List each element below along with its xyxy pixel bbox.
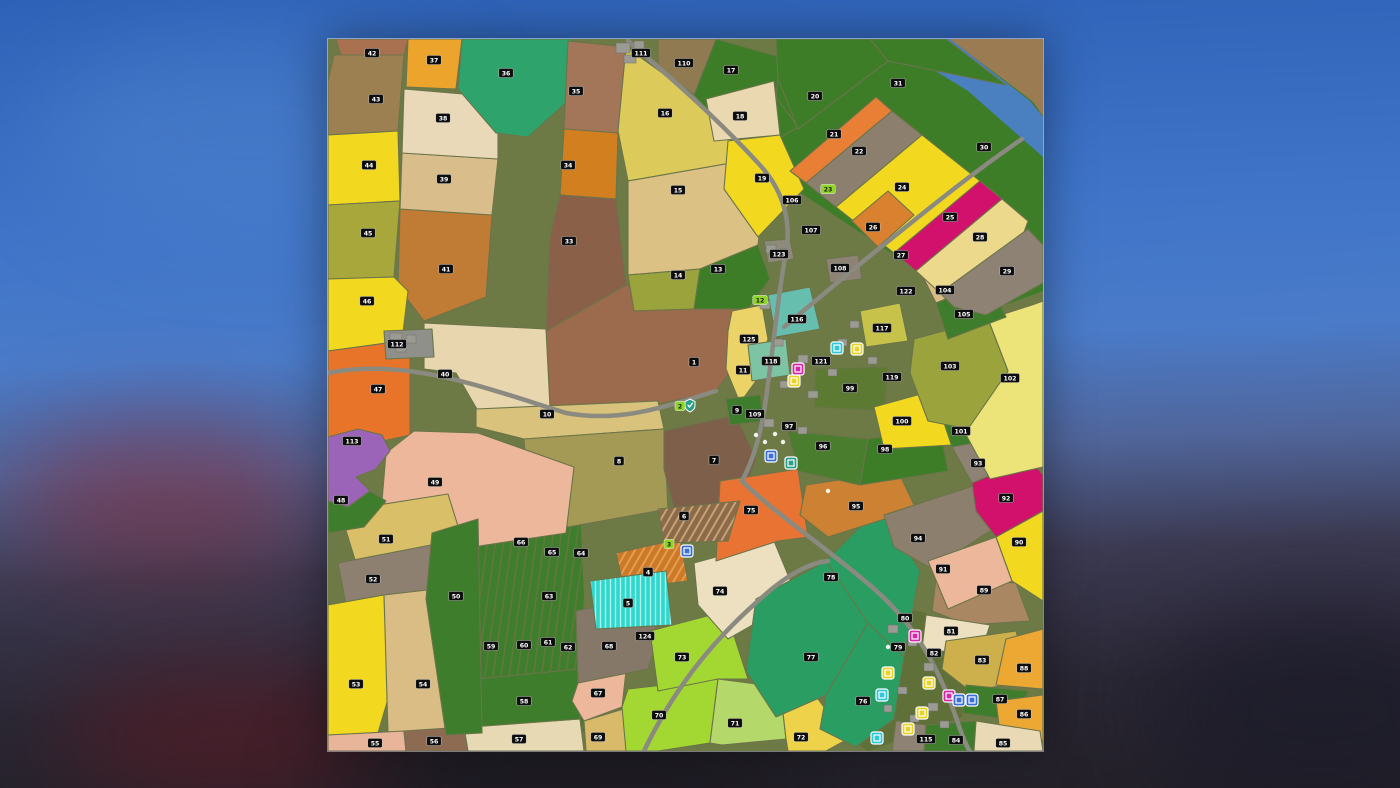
- field-label-3: 3: [664, 539, 674, 548]
- field-label-98: 98: [878, 444, 893, 453]
- svg-text:28: 28: [976, 234, 985, 241]
- svg-text:115: 115: [920, 736, 933, 743]
- svg-text:18: 18: [736, 113, 745, 120]
- field-label-11: 11: [736, 365, 751, 374]
- field-label-62: 62: [561, 642, 576, 651]
- field-label-19: 19: [755, 173, 770, 182]
- svg-text:30: 30: [980, 144, 989, 151]
- svg-text:92: 92: [1002, 495, 1011, 502]
- field-label-107: 107: [802, 225, 821, 234]
- building: [884, 705, 892, 712]
- field-label-72: 72: [794, 732, 809, 741]
- svg-text:73: 73: [678, 654, 687, 661]
- svg-text:22: 22: [855, 148, 864, 155]
- field-label-111: 111: [632, 48, 651, 57]
- field-label-106: 106: [783, 195, 802, 204]
- field-label-115: 115: [917, 734, 936, 743]
- field-label-68: 68: [602, 641, 617, 650]
- field-label-23: 23: [821, 184, 836, 193]
- svg-text:11: 11: [739, 367, 748, 374]
- vehicle-marker: [886, 645, 890, 649]
- building: [634, 41, 644, 49]
- svg-text:88: 88: [1020, 665, 1029, 672]
- field-label-103: 103: [941, 361, 960, 370]
- field-label-101: 101: [952, 426, 971, 435]
- vehicle-marker: [826, 489, 830, 493]
- svg-text:10: 10: [543, 411, 552, 418]
- svg-text:9: 9: [735, 407, 739, 414]
- field-55[interactable]: [328, 731, 406, 751]
- field-label-45: 45: [361, 228, 376, 237]
- field-label-76: 76: [856, 696, 871, 705]
- svg-text:89: 89: [980, 587, 989, 594]
- field-label-83: 83: [975, 655, 990, 664]
- svg-text:59: 59: [487, 643, 496, 650]
- field-label-17: 17: [724, 65, 739, 74]
- svg-text:49: 49: [431, 479, 440, 486]
- field-label-35: 35: [569, 86, 584, 95]
- svg-text:2: 2: [678, 403, 682, 410]
- building: [868, 357, 877, 364]
- svg-text:121: 121: [815, 358, 828, 365]
- field-label-66: 66: [514, 537, 529, 546]
- field-label-22: 22: [852, 146, 867, 155]
- svg-text:105: 105: [958, 311, 971, 318]
- svg-text:60: 60: [520, 642, 529, 649]
- svg-text:67: 67: [594, 690, 603, 697]
- svg-text:96: 96: [819, 443, 828, 450]
- field-label-15: 15: [671, 185, 686, 194]
- building: [406, 335, 416, 343]
- svg-text:91: 91: [939, 566, 948, 573]
- field-label-37: 37: [427, 55, 442, 64]
- field-70[interactable]: [622, 679, 718, 751]
- field-label-33: 33: [562, 236, 577, 245]
- field-label-39: 39: [437, 174, 452, 183]
- field-label-4: 4: [643, 567, 653, 576]
- svg-text:24: 24: [898, 184, 907, 191]
- field-label-38: 38: [436, 113, 451, 122]
- svg-text:75: 75: [747, 507, 756, 514]
- field-6[interactable]: [658, 501, 740, 543]
- svg-text:35: 35: [572, 88, 581, 95]
- field-label-70: 70: [652, 710, 667, 719]
- field-label-112: 112: [388, 339, 407, 348]
- svg-text:3: 3: [667, 541, 671, 548]
- field-label-69: 69: [591, 732, 606, 741]
- field-label-24: 24: [895, 182, 910, 191]
- svg-text:4: 4: [646, 569, 651, 576]
- field-label-108: 108: [831, 263, 850, 272]
- poi-shop-blue[interactable]: [953, 694, 965, 706]
- field-53[interactable]: [328, 595, 388, 735]
- field-label-92: 92: [999, 493, 1014, 502]
- svg-text:20: 20: [811, 93, 820, 100]
- svg-text:119: 119: [886, 374, 899, 381]
- svg-text:74: 74: [716, 588, 725, 595]
- svg-text:76: 76: [859, 698, 868, 705]
- field-label-25: 25: [943, 212, 958, 221]
- field-label-79: 79: [891, 642, 906, 651]
- poi-shop-blue[interactable]: [966, 694, 978, 706]
- svg-text:97: 97: [785, 423, 794, 430]
- field-label-7: 7: [709, 455, 719, 464]
- svg-text:116: 116: [791, 316, 804, 323]
- field-label-44: 44: [362, 160, 377, 169]
- field-label-6: 6: [679, 511, 689, 520]
- field-label-31: 31: [891, 78, 906, 87]
- field-14[interactable]: [628, 269, 700, 311]
- svg-text:107: 107: [805, 227, 818, 234]
- field-label-53: 53: [349, 679, 364, 688]
- svg-text:48: 48: [337, 497, 346, 504]
- field-label-49: 49: [428, 477, 443, 486]
- field-label-109: 109: [746, 409, 765, 418]
- svg-text:101: 101: [955, 428, 968, 435]
- building: [774, 339, 783, 346]
- field-label-86: 86: [1017, 709, 1032, 718]
- poi-sell-point-yellow[interactable]: [788, 375, 800, 387]
- svg-text:42: 42: [368, 50, 377, 57]
- field-label-47: 47: [371, 384, 386, 393]
- field-label-64: 64: [574, 548, 589, 557]
- field-label-26: 26: [866, 222, 881, 231]
- vehicle-marker: [763, 440, 767, 444]
- field-label-116: 116: [788, 314, 807, 323]
- svg-text:8: 8: [617, 458, 621, 465]
- svg-text:93: 93: [974, 460, 983, 467]
- field-label-63: 63: [542, 591, 557, 600]
- building: [928, 703, 938, 711]
- svg-text:26: 26: [869, 224, 878, 231]
- field-label-91: 91: [936, 564, 951, 573]
- poi-shop-blue[interactable]: [681, 545, 693, 557]
- building: [808, 391, 818, 398]
- field-label-65: 65: [545, 547, 560, 556]
- svg-text:71: 71: [731, 720, 740, 727]
- field-label-20: 20: [808, 91, 823, 100]
- field-label-21: 21: [827, 129, 842, 138]
- field-label-46: 46: [360, 296, 375, 305]
- field-label-12: 12: [753, 295, 768, 304]
- field-label-122: 122: [897, 286, 916, 295]
- svg-text:6: 6: [682, 513, 686, 520]
- field-label-51: 51: [379, 534, 394, 543]
- svg-text:44: 44: [365, 162, 374, 169]
- field-label-88: 88: [1017, 663, 1032, 672]
- field-label-85: 85: [996, 738, 1011, 747]
- svg-text:72: 72: [797, 734, 806, 741]
- field-label-124: 124: [636, 631, 655, 640]
- svg-text:79: 79: [894, 644, 903, 651]
- svg-text:102: 102: [1004, 375, 1017, 382]
- svg-text:123: 123: [773, 251, 786, 258]
- svg-text:19: 19: [758, 175, 767, 182]
- field-label-13: 13: [711, 264, 726, 273]
- field-label-40: 40: [438, 369, 453, 378]
- svg-text:27: 27: [897, 252, 906, 259]
- field-label-89: 89: [977, 585, 992, 594]
- field-label-113: 113: [343, 436, 362, 445]
- field-label-42: 42: [365, 48, 380, 57]
- svg-text:13: 13: [714, 266, 723, 273]
- field-label-105: 105: [955, 309, 974, 318]
- field-label-95: 95: [849, 501, 864, 510]
- field-label-50: 50: [449, 591, 464, 600]
- svg-text:47: 47: [374, 386, 383, 393]
- field-label-81: 81: [944, 626, 959, 635]
- building: [764, 419, 774, 427]
- field-label-75: 75: [744, 505, 759, 514]
- poi-vehicle-teal[interactable]: [785, 457, 797, 469]
- building: [898, 687, 907, 694]
- svg-text:55: 55: [371, 740, 380, 747]
- svg-text:90: 90: [1015, 539, 1024, 546]
- field-label-96: 96: [816, 441, 831, 450]
- field-label-87: 87: [993, 694, 1008, 703]
- field-label-67: 67: [591, 688, 606, 697]
- svg-text:31: 31: [894, 80, 903, 87]
- poi-sell-point-yellow[interactable]: [923, 677, 935, 689]
- poi-sell-point-yellow[interactable]: [916, 707, 928, 719]
- svg-text:83: 83: [978, 657, 987, 664]
- svg-text:109: 109: [749, 411, 762, 418]
- building: [850, 321, 859, 328]
- field-label-14: 14: [671, 270, 686, 279]
- svg-text:78: 78: [827, 574, 836, 581]
- building: [924, 663, 934, 671]
- svg-text:15: 15: [674, 187, 683, 194]
- field-label-123: 123: [770, 249, 789, 258]
- field-label-77: 77: [804, 652, 819, 661]
- svg-text:25: 25: [946, 214, 955, 221]
- field-label-97: 97: [782, 421, 797, 430]
- poi-sell-point-yellow[interactable]: [902, 723, 914, 735]
- field-label-99: 99: [843, 383, 858, 392]
- svg-text:37: 37: [430, 57, 439, 64]
- poi-sell-point-yellow[interactable]: [851, 343, 863, 355]
- field-map-canvas[interactable]: 1404139383736353433161514131711018192031…: [328, 39, 1043, 751]
- building: [888, 625, 898, 633]
- shield-icon[interactable]: [685, 399, 695, 412]
- field-label-58: 58: [517, 696, 532, 705]
- background-blur-dark: [1150, 600, 1400, 788]
- svg-text:43: 43: [372, 96, 381, 103]
- svg-text:51: 51: [382, 536, 391, 543]
- svg-text:98: 98: [881, 446, 890, 453]
- field-label-117: 117: [873, 323, 892, 332]
- field-39[interactable]: [400, 153, 498, 215]
- field-map[interactable]: 1404139383736353433161514131711018192031…: [327, 38, 1044, 752]
- field-label-29: 29: [1000, 266, 1015, 275]
- svg-text:70: 70: [655, 712, 664, 719]
- svg-text:5: 5: [626, 600, 630, 607]
- field-label-27: 27: [894, 250, 909, 259]
- field-label-52: 52: [366, 574, 381, 583]
- field-label-54: 54: [416, 679, 431, 688]
- poi-shop-blue[interactable]: [765, 450, 777, 462]
- poi-sell-point-yellow[interactable]: [882, 667, 894, 679]
- poi-production-cyan[interactable]: [876, 689, 888, 701]
- building: [798, 355, 808, 363]
- svg-text:104: 104: [939, 287, 953, 294]
- vehicle-marker: [773, 432, 777, 436]
- svg-text:112: 112: [391, 341, 404, 348]
- svg-text:23: 23: [824, 186, 833, 193]
- svg-text:52: 52: [369, 576, 378, 583]
- svg-text:34: 34: [564, 162, 573, 169]
- svg-text:99: 99: [846, 385, 855, 392]
- field-label-102: 102: [1001, 373, 1020, 382]
- svg-text:39: 39: [440, 176, 449, 183]
- svg-text:87: 87: [996, 696, 1005, 703]
- building: [798, 427, 807, 434]
- svg-text:77: 77: [807, 654, 816, 661]
- svg-text:40: 40: [441, 371, 450, 378]
- vehicle-marker: [754, 433, 758, 437]
- svg-text:41: 41: [442, 266, 451, 273]
- svg-text:33: 33: [565, 238, 574, 245]
- svg-text:50: 50: [452, 593, 461, 600]
- svg-text:110: 110: [678, 60, 692, 67]
- field-label-55: 55: [368, 738, 383, 747]
- svg-text:85: 85: [999, 740, 1008, 747]
- svg-text:1: 1: [692, 359, 696, 366]
- background-scene: 1404139383736353433161514131711018192031…: [0, 0, 1400, 788]
- field-label-9: 9: [732, 405, 742, 414]
- field-43[interactable]: [328, 55, 404, 135]
- field-label-94: 94: [911, 533, 926, 542]
- field-label-48: 48: [334, 495, 349, 504]
- field-label-93: 93: [971, 458, 986, 467]
- svg-text:68: 68: [605, 643, 614, 650]
- field-label-73: 73: [675, 652, 690, 661]
- svg-text:57: 57: [515, 736, 524, 743]
- svg-text:29: 29: [1003, 268, 1012, 275]
- field-45[interactable]: [328, 201, 400, 279]
- svg-text:124: 124: [639, 633, 653, 640]
- field-label-16: 16: [658, 108, 673, 117]
- vehicle-marker: [781, 440, 785, 444]
- field-label-36: 36: [499, 68, 514, 77]
- svg-text:61: 61: [544, 639, 553, 646]
- field-label-2: 2: [675, 401, 685, 410]
- poi-production-cyan[interactable]: [831, 342, 843, 354]
- svg-text:86: 86: [1020, 711, 1029, 718]
- svg-text:58: 58: [520, 698, 529, 705]
- svg-text:111: 111: [635, 50, 648, 57]
- svg-text:45: 45: [364, 230, 373, 237]
- poi-production-magenta[interactable]: [909, 630, 921, 642]
- field-label-90: 90: [1012, 537, 1027, 546]
- svg-text:103: 103: [944, 363, 957, 370]
- svg-text:7: 7: [712, 457, 716, 464]
- field-label-34: 34: [561, 160, 576, 169]
- field-label-28: 28: [973, 232, 988, 241]
- field-label-57: 57: [512, 734, 527, 743]
- svg-text:94: 94: [914, 535, 923, 542]
- svg-text:16: 16: [661, 110, 670, 117]
- svg-text:17: 17: [727, 67, 736, 74]
- field-label-59: 59: [484, 641, 499, 650]
- svg-text:66: 66: [517, 539, 526, 546]
- field-label-119: 119: [883, 372, 902, 381]
- field-label-43: 43: [369, 94, 384, 103]
- field-label-56: 56: [427, 736, 442, 745]
- svg-text:56: 56: [430, 738, 439, 745]
- svg-text:80: 80: [901, 615, 910, 622]
- svg-text:108: 108: [834, 265, 847, 272]
- field-label-61: 61: [541, 637, 556, 646]
- field-label-8: 8: [614, 456, 624, 465]
- svg-text:54: 54: [419, 681, 428, 688]
- svg-text:117: 117: [876, 325, 889, 332]
- svg-text:82: 82: [930, 650, 939, 657]
- field-label-82: 82: [927, 648, 942, 657]
- field-label-41: 41: [439, 264, 454, 273]
- svg-text:36: 36: [502, 70, 511, 77]
- svg-text:100: 100: [896, 418, 910, 425]
- field-label-60: 60: [517, 640, 532, 649]
- svg-text:64: 64: [577, 550, 586, 557]
- svg-text:106: 106: [786, 197, 799, 204]
- svg-text:12: 12: [756, 297, 765, 304]
- svg-text:84: 84: [952, 737, 961, 744]
- svg-text:81: 81: [947, 628, 956, 635]
- svg-text:14: 14: [674, 272, 683, 279]
- svg-text:69: 69: [594, 734, 603, 741]
- building: [616, 43, 630, 53]
- svg-text:95: 95: [852, 503, 861, 510]
- field-label-125: 125: [740, 334, 759, 343]
- field-label-78: 78: [824, 572, 839, 581]
- svg-text:122: 122: [900, 288, 913, 295]
- svg-text:118: 118: [765, 358, 778, 365]
- field-label-18: 18: [733, 111, 748, 120]
- svg-text:125: 125: [743, 336, 756, 343]
- poi-production-magenta[interactable]: [792, 363, 804, 375]
- background-blur-red: [10, 420, 320, 570]
- svg-text:21: 21: [830, 131, 839, 138]
- field-label-80: 80: [898, 613, 913, 622]
- field-label-121: 121: [812, 356, 831, 365]
- building: [940, 721, 949, 728]
- field-label-74: 74: [713, 586, 728, 595]
- svg-text:62: 62: [564, 644, 573, 651]
- field-label-71: 71: [728, 718, 743, 727]
- svg-text:63: 63: [545, 593, 554, 600]
- svg-text:53: 53: [352, 681, 361, 688]
- svg-text:65: 65: [548, 549, 557, 556]
- building: [828, 369, 837, 376]
- field-label-118: 118: [762, 356, 781, 365]
- field-label-10: 10: [540, 409, 555, 418]
- field-label-5: 5: [623, 598, 633, 607]
- svg-text:46: 46: [363, 298, 372, 305]
- field-label-110: 110: [675, 58, 694, 67]
- field-label-100: 100: [893, 416, 912, 425]
- field-label-30: 30: [977, 142, 992, 151]
- field-label-104: 104: [936, 285, 955, 294]
- svg-text:113: 113: [346, 438, 359, 445]
- field-label-84: 84: [949, 735, 964, 744]
- poi-production-cyan[interactable]: [871, 732, 883, 744]
- svg-text:38: 38: [439, 115, 448, 122]
- field-label-1: 1: [689, 357, 699, 366]
